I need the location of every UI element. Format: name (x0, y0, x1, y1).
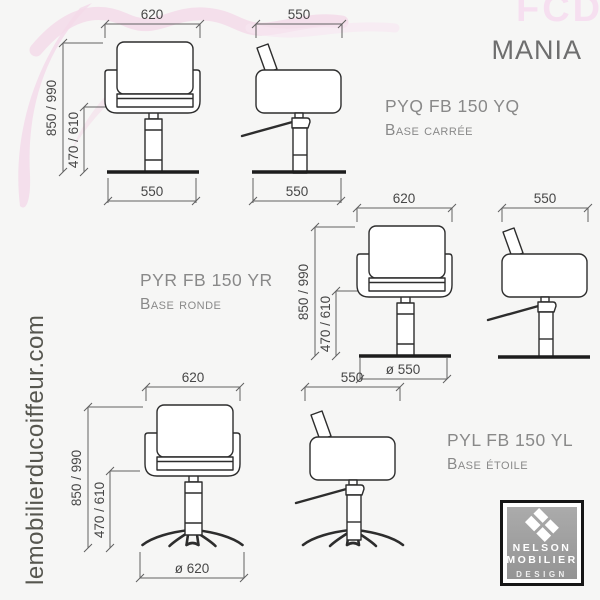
dim-label-row3-base-diameter: ø 620 (175, 561, 210, 576)
product-base-label: Base ronde (140, 296, 273, 314)
dim-label-row2-base-diameter: ø 550 (386, 362, 421, 377)
dim-label-row2-total-height: 850 / 990 (296, 264, 311, 320)
dim-label-row2-seat-height: 470 / 610 (318, 296, 333, 352)
product-block-pyq: PYQ FB 150 YQ Base carrée (385, 96, 520, 140)
row3-front-view-drawing: 620 850 / 990 470 / 610 ø 620 (69, 370, 248, 582)
row2-side-view-drawing: 550 (488, 191, 592, 357)
nelson-mobilier-logo: NELSON MOBILIER DESIGN (500, 500, 584, 586)
dim-label-row3-seat-height: 470 / 610 (92, 482, 107, 538)
website-watermark: lemobilierducoiffeur.com (22, 315, 50, 585)
product-code: PYR FB 150 YR (140, 270, 273, 291)
dim-label-row2-side-top: 550 (534, 191, 557, 206)
dim-label-row1-seat-height: 470 / 610 (66, 112, 81, 168)
product-base-label: Base étoile (447, 456, 573, 474)
product-block-pyr: PYR FB 150 YR Base ronde (140, 270, 273, 314)
row1-front-view-drawing: 620 850 / 990 470 / 610 550 (44, 7, 204, 205)
fcd-watermark: FCD (516, 0, 600, 31)
dim-label-row3-front-top: 620 (182, 370, 205, 385)
dim-label-row3-side-top: 550 (341, 370, 364, 385)
logo-name-line1: NELSON (506, 542, 577, 555)
product-code: PYQ FB 150 YQ (385, 96, 520, 117)
diamond-icon (525, 508, 559, 542)
row2-front-view-drawing: 620 850 / 990 470 / 610 ø 550 (296, 191, 456, 383)
dim-label-row3-total-height: 850 / 990 (69, 450, 84, 506)
dim-label-row2-front-top: 620 (393, 191, 416, 206)
product-code: PYL FB 150 YL (447, 430, 573, 451)
page-title: MANIA (470, 35, 582, 66)
dim-label-row1-front-base: 550 (141, 184, 164, 199)
logo-tagline: DESIGN (516, 570, 568, 579)
product-base-label: Base carrée (385, 122, 520, 140)
dim-label-row1-front-top: 620 (141, 7, 164, 22)
dim-label-row1-total-height: 850 / 990 (44, 80, 59, 136)
row3-side-view-drawing: 550 (296, 370, 404, 546)
dim-label-row1-side-top: 550 (288, 7, 311, 22)
logo-name-line2: MOBILIER (506, 554, 577, 567)
dim-label-row1-side-base: 550 (286, 184, 309, 199)
logo-inner-panel: NELSON MOBILIER DESIGN (507, 507, 577, 579)
product-block-pyl: PYL FB 150 YL Base étoile (447, 430, 573, 474)
